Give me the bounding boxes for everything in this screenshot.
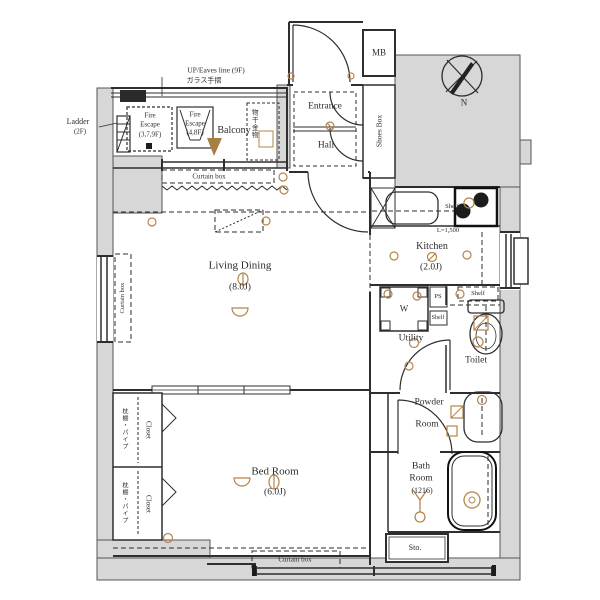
up-eaves-label: UP/Eaves line (9F)	[187, 66, 245, 74]
entrance-label: Entrance	[308, 102, 342, 112]
curtain-line	[162, 186, 287, 190]
washbasin-icon	[447, 392, 502, 442]
balcony-label: Balcony	[217, 126, 250, 136]
shoes-box-label: Shoes Box	[375, 115, 383, 147]
closet-2-note: 枕棚・パイプ	[121, 482, 127, 524]
closet-1-label: Closet	[145, 421, 152, 439]
curtain-box-bottom-label: Curtain box	[278, 557, 311, 564]
utility-label: Utility	[399, 334, 424, 344]
closet-2-label: Closet	[145, 495, 152, 513]
kitchen-label: Kitchen	[416, 242, 448, 252]
closet-1-note: 枕棚・パイプ	[121, 408, 127, 450]
storage-label: Sto.	[409, 544, 422, 552]
floor-plan: UP/Eaves line (9F) ガラス手摺 Ladder (2F) Fir…	[0, 0, 600, 600]
window-cutouts	[97, 232, 528, 342]
bath-room-size: (1216)	[411, 487, 432, 495]
bed-room-size: (6.0J)	[264, 488, 286, 498]
bath-room-label-1: Bath	[412, 462, 430, 472]
living-door-arc	[308, 172, 368, 232]
bath-room-label-2: Room	[409, 474, 432, 484]
laundry-hardware-label: 物干金物	[250, 109, 257, 139]
shoes-door-arc	[330, 128, 363, 161]
shelf-small-label: Shelf	[432, 315, 445, 321]
escape-hatch-icon	[120, 90, 146, 102]
fire-escape-a-line3: (3,7,9F)	[139, 132, 162, 139]
shelf-toilet-label: Shelf	[471, 291, 485, 298]
powder-room-label-1: Powder	[414, 398, 443, 408]
fire-escape-b-line3: (4,8F)	[186, 130, 203, 137]
bed-room-label: Bed Room	[251, 467, 298, 478]
north-label: N	[461, 99, 468, 108]
kitchen-shelf-label: Shelf	[445, 204, 459, 211]
fire-escape-a-line2: Escape	[140, 122, 160, 129]
living-dining-label: Living Dining	[209, 261, 272, 272]
stove-icon	[455, 188, 497, 226]
pipe-space-label: PS	[434, 294, 441, 301]
glass-rail-label: ガラス手摺	[187, 78, 222, 85]
meter-box-label: MB	[372, 49, 386, 58]
bathtub-icon	[448, 452, 496, 530]
living-dining-size: (8.0J)	[229, 283, 251, 293]
powder-room-label-2: Room	[415, 420, 438, 430]
hall-label: Hall	[318, 141, 334, 151]
curtain-box-top-label: Curtain box	[192, 174, 225, 181]
down-arrow-icon	[207, 138, 222, 156]
front-door-arc	[293, 25, 350, 82]
ladder-floor-label: (2F)	[74, 129, 86, 136]
toilet-label: Toilet	[465, 356, 487, 366]
kitchen-fixtures	[371, 188, 497, 228]
sink-icon	[386, 192, 438, 224]
ladder-label: Ladder	[67, 118, 90, 126]
floor-plan-drawing	[0, 0, 600, 600]
utility-door-arc	[400, 340, 450, 390]
fire-escape-b-line1: Fire	[189, 112, 200, 119]
ladder-icon	[117, 116, 130, 152]
counter-length-label: L=1,500	[437, 228, 459, 235]
fire-escape-b-line2: Escape	[185, 121, 205, 128]
sliding-door	[152, 386, 290, 394]
washer-label: W	[400, 305, 409, 314]
fire-escape-a-line1: Fire	[144, 113, 155, 120]
curtain-box-left-label: Curtain box	[120, 283, 127, 314]
kitchen-size: (2.0J)	[420, 263, 442, 273]
